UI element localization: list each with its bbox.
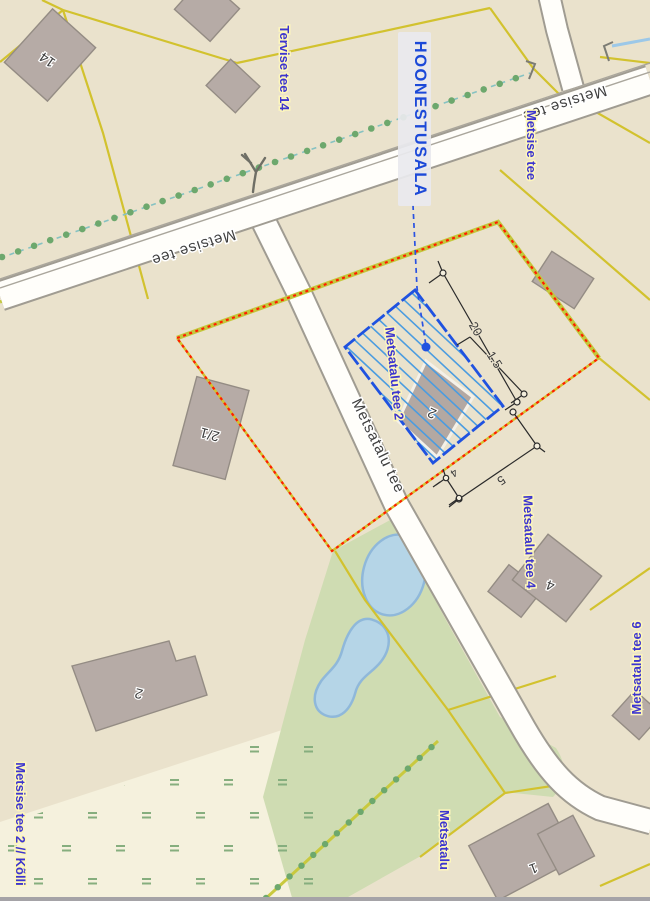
- map-canvas[interactable]: 20 1.5 5 4 Metsise tee Metsise tee Metsa…: [0, 0, 650, 901]
- address-label-metsatalu-tee-6: Metsatalu tee 6: [629, 621, 644, 714]
- address-label-metsise-tee: Metsise tee: [524, 110, 539, 180]
- address-label-metsatalu-bottom: Metsatalu: [437, 810, 452, 870]
- map-viewport[interactable]: 20 1.5 5 4 Metsise tee Metsise tee Metsa…: [0, 0, 650, 901]
- hoonestusala-label: HOONESTUSALA: [398, 32, 431, 206]
- address-label-tervise-tee-14: Tervise tee 14: [277, 25, 292, 111]
- address-label-metsise-tee-2-kolli: Metsise tee 2 // Kõlli: [13, 762, 28, 886]
- bottom-edge-strip: [0, 897, 650, 901]
- leader-dot: [422, 343, 431, 352]
- hoonestusala-label-text: HOONESTUSALA: [411, 41, 429, 197]
